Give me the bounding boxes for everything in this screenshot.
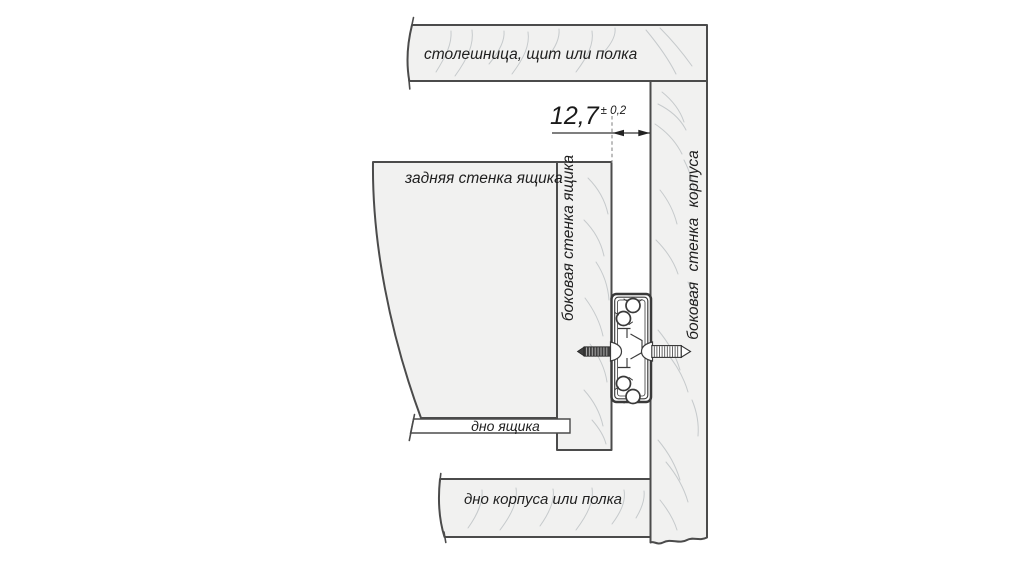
cabinet-bottom-label: дно корпуса или полка bbox=[443, 491, 643, 508]
drawing-layer bbox=[0, 0, 1024, 576]
cabinet-side-wall-label: боковая стенка корпуса bbox=[685, 95, 703, 395]
back-wall-label: задняя стенка ящика bbox=[405, 170, 558, 188]
dimension-value: 12,7 bbox=[550, 102, 599, 130]
dimension-label: 12,7± 0,2 bbox=[550, 103, 626, 129]
drawer-bottom-label: дно ящика bbox=[426, 419, 585, 433]
cabinet-bottom-shape bbox=[439, 474, 651, 543]
diagram-canvas: столешница, щит или полка задняя стенка … bbox=[0, 0, 1024, 576]
back-wall-shape bbox=[373, 162, 557, 418]
top-board-label: столешница, щит или полка bbox=[424, 46, 637, 64]
drawer-side-wall-label: боковая стенка ящика bbox=[560, 88, 578, 388]
dimension-tolerance: ± 0,2 bbox=[601, 105, 627, 117]
